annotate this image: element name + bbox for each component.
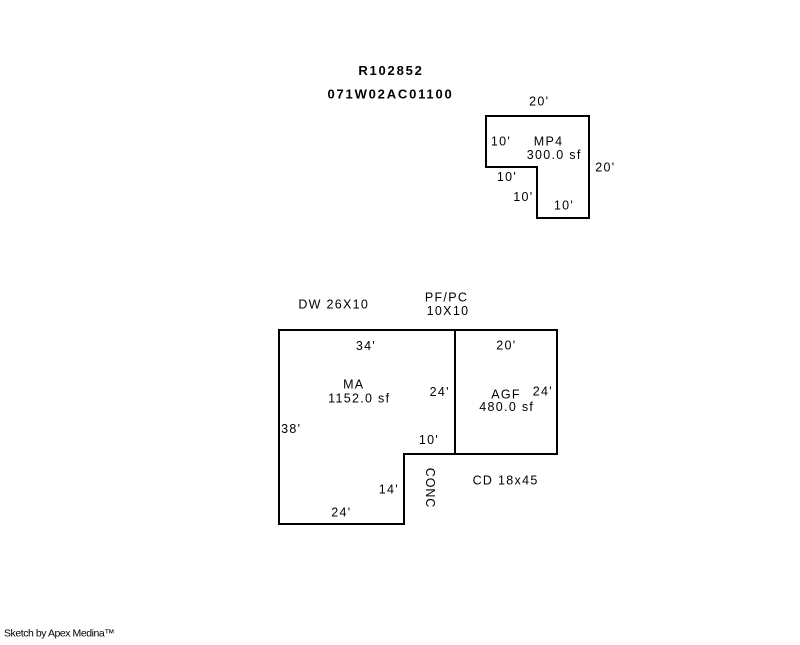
svg-text:10': 10' [419,433,439,447]
svg-text:20': 20' [529,94,549,108]
svg-text:PF/PC: PF/PC [425,290,468,304]
svg-text:CD 18x45: CD 18x45 [473,473,539,487]
svg-text:1152.0 sf: 1152.0 sf [328,391,390,405]
svg-text:14': 14' [379,482,399,496]
svg-text:10': 10' [554,199,574,213]
svg-text:20': 20' [496,338,516,352]
svg-text:480.0 sf: 480.0 sf [479,400,534,414]
svg-text:10': 10' [497,170,517,184]
svg-text:38': 38' [281,422,301,436]
svg-text:R102852: R102852 [358,63,423,78]
svg-text:10': 10' [513,190,533,204]
svg-text:DW 26X10: DW 26X10 [298,298,369,312]
svg-text:MP4: MP4 [534,135,564,149]
svg-text:24': 24' [533,384,553,398]
svg-text:Sketch by Apex Medina™: Sketch by Apex Medina™ [4,628,114,640]
svg-text:24': 24' [331,506,351,520]
svg-text:34': 34' [356,339,376,353]
svg-text:10X10: 10X10 [427,304,470,318]
svg-text:MA: MA [343,378,364,392]
svg-text:24': 24' [430,385,450,399]
svg-text:10': 10' [491,135,511,149]
svg-text:20': 20' [595,161,615,175]
svg-text:071W02AC01100: 071W02AC01100 [327,87,453,102]
svg-text:300.0 sf: 300.0 sf [527,148,582,162]
svg-text:CONC: CONC [423,468,437,508]
